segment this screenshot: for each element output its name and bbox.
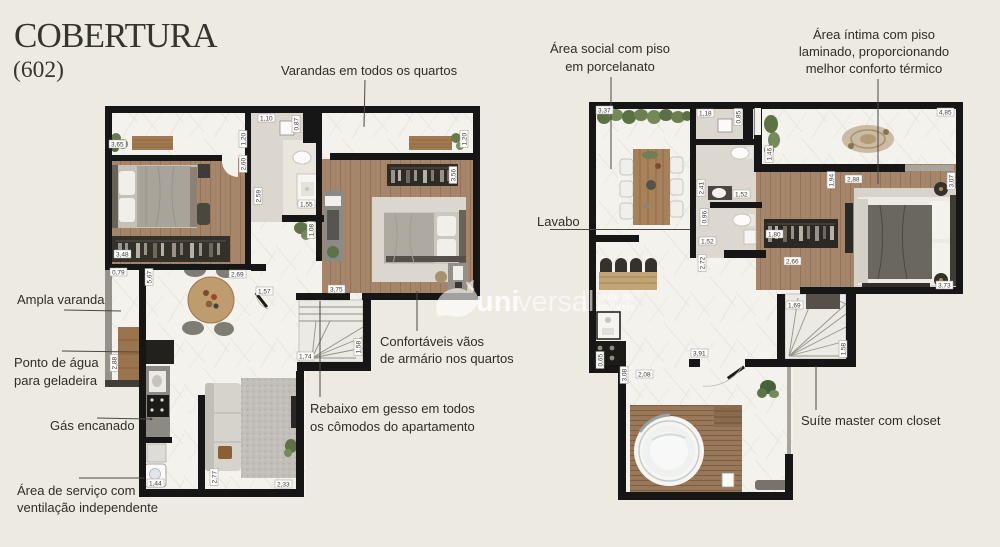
svg-text:Ampla varanda: Ampla varanda bbox=[17, 292, 105, 307]
svg-text:3,65: 3,65 bbox=[111, 142, 124, 149]
svg-text:1,74: 1,74 bbox=[299, 354, 312, 361]
svg-text:3,07: 3,07 bbox=[949, 174, 956, 187]
svg-text:uni: uni bbox=[476, 286, 520, 318]
svg-text:Gás encanado: Gás encanado bbox=[50, 418, 135, 433]
svg-text:1,52: 1,52 bbox=[701, 239, 714, 246]
svg-text:0,85: 0,85 bbox=[736, 110, 743, 123]
svg-text:Confortáveis vãos: Confortáveis vãos bbox=[380, 334, 485, 349]
svg-text:em porcelanato: em porcelanato bbox=[565, 59, 655, 74]
svg-text:Área íntima com piso: Área íntima com piso bbox=[813, 27, 935, 42]
svg-text:1,94: 1,94 bbox=[829, 173, 836, 186]
svg-text:3,75: 3,75 bbox=[330, 287, 343, 294]
svg-text:COBERTURA: COBERTURA bbox=[14, 16, 218, 55]
svg-text:laminado, proporcionando: laminado, proporcionando bbox=[799, 44, 949, 59]
svg-text:2,69: 2,69 bbox=[231, 272, 244, 279]
svg-text:3,73: 3,73 bbox=[938, 283, 951, 290]
svg-text:2,59: 2,59 bbox=[256, 189, 263, 202]
svg-text:1,44: 1,44 bbox=[149, 481, 162, 488]
svg-text:Área social com piso: Área social com piso bbox=[550, 41, 670, 56]
svg-text:2,77: 2,77 bbox=[212, 470, 219, 483]
svg-text:1,46: 1,46 bbox=[767, 147, 774, 160]
svg-text:0,96: 0,96 bbox=[702, 210, 709, 223]
svg-text:Varandas em todos os quartos: Varandas em todos os quartos bbox=[281, 63, 458, 78]
svg-text:2,08: 2,08 bbox=[638, 372, 651, 379]
svg-text:melhor conforto térmico: melhor conforto térmico bbox=[806, 61, 943, 76]
svg-text:1,08: 1,08 bbox=[309, 223, 316, 236]
svg-text:Rebaixo em gesso em todos: Rebaixo em gesso em todos bbox=[310, 401, 475, 416]
svg-text:3,37: 3,37 bbox=[598, 108, 611, 115]
svg-text:1,58: 1,58 bbox=[356, 340, 363, 353]
svg-text:Lavabo: Lavabo bbox=[537, 214, 580, 229]
svg-text:1,80: 1,80 bbox=[768, 232, 781, 239]
svg-text:1,18: 1,18 bbox=[699, 111, 712, 118]
svg-text:1,57: 1,57 bbox=[258, 289, 271, 296]
svg-text:2,72: 2,72 bbox=[700, 256, 707, 269]
svg-text:1,20: 1,20 bbox=[241, 132, 248, 145]
svg-text:2,41: 2,41 bbox=[699, 181, 706, 194]
svg-text:Área de serviço com: Área de serviço com bbox=[17, 483, 136, 498]
svg-text:4,85: 4,85 bbox=[939, 110, 952, 117]
svg-text:2,66: 2,66 bbox=[786, 259, 799, 266]
svg-text:0,79: 0,79 bbox=[112, 270, 125, 277]
svg-text:Ponto de água: Ponto de água bbox=[14, 355, 99, 370]
svg-text:3,08: 3,08 bbox=[622, 368, 629, 381]
svg-text:0,87: 0,87 bbox=[294, 117, 301, 130]
svg-text:0,65: 0,65 bbox=[598, 353, 605, 366]
svg-text:2,33: 2,33 bbox=[277, 482, 290, 489]
svg-text:1,20: 1,20 bbox=[462, 132, 469, 145]
svg-text:2,88: 2,88 bbox=[847, 177, 860, 184]
svg-text:1,58: 1,58 bbox=[841, 342, 848, 355]
svg-text:3,48: 3,48 bbox=[116, 252, 129, 259]
svg-text:1,69: 1,69 bbox=[788, 303, 801, 310]
svg-text:os cômodos do apartamento: os cômodos do apartamento bbox=[310, 419, 475, 434]
svg-text:1,55: 1,55 bbox=[300, 202, 313, 209]
svg-text:ventilação independente: ventilação independente bbox=[17, 500, 158, 515]
svg-text:2,60: 2,60 bbox=[241, 157, 248, 170]
svg-text:versal: versal bbox=[517, 286, 594, 318]
svg-text:5,67: 5,67 bbox=[147, 270, 154, 283]
svg-text:2,88: 2,88 bbox=[112, 356, 119, 369]
svg-text:1,52: 1,52 bbox=[735, 192, 748, 199]
svg-text:3,56: 3,56 bbox=[451, 168, 458, 181]
svg-text:(602): (602) bbox=[13, 57, 64, 83]
svg-text:de armário nos quartos: de armário nos quartos bbox=[380, 351, 514, 366]
svg-text:Suíte master com closet: Suíte master com closet bbox=[801, 413, 941, 428]
svg-text:para geladeira: para geladeira bbox=[14, 373, 98, 388]
svg-text:3,91: 3,91 bbox=[693, 351, 706, 358]
svg-text:1,10: 1,10 bbox=[260, 116, 273, 123]
svg-text:imóveis: imóveis bbox=[598, 302, 636, 313]
